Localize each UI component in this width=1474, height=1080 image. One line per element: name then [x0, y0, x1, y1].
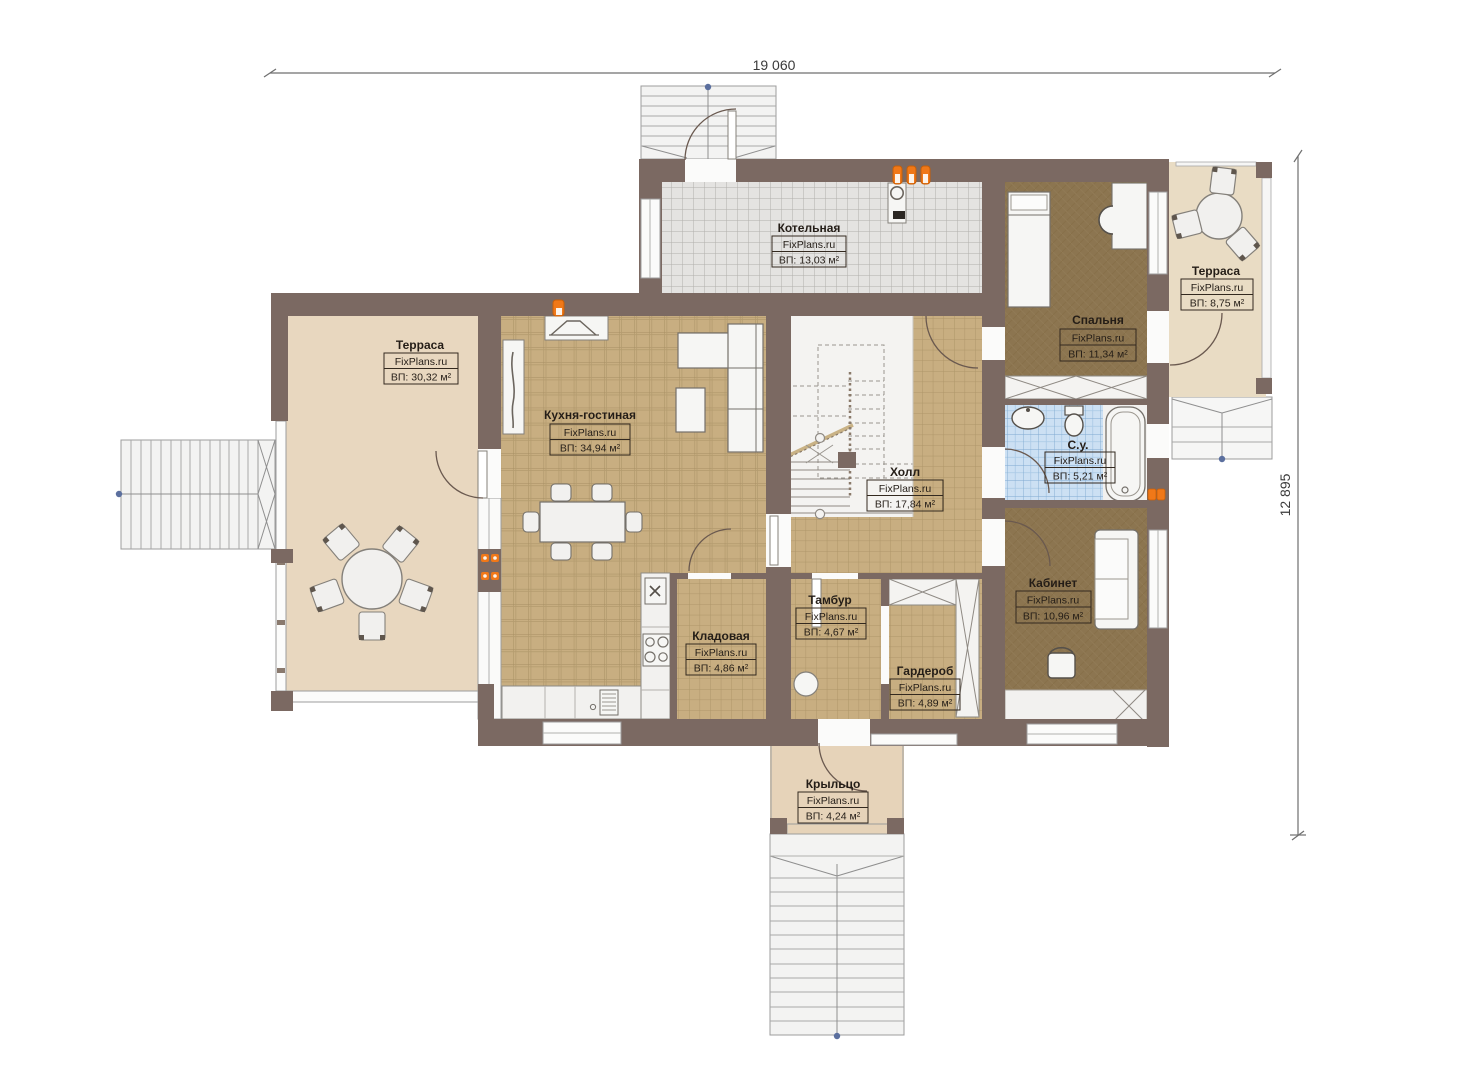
- svg-text:Тамбур: Тамбур: [808, 593, 852, 607]
- svg-text:Кухня-гостиная: Кухня-гостиная: [544, 408, 636, 422]
- svg-text:ВП: 30,32 м²: ВП: 30,32 м²: [391, 372, 452, 384]
- svg-text:FixPlans.ru: FixPlans.ru: [783, 239, 836, 251]
- svg-text:FixPlans.ru: FixPlans.ru: [1191, 282, 1244, 294]
- svg-text:FixPlans.ru: FixPlans.ru: [899, 682, 952, 694]
- svg-text:ВП: 10,96 м²: ВП: 10,96 м²: [1023, 611, 1084, 623]
- svg-text:Котельная: Котельная: [778, 221, 841, 235]
- svg-text:Кабинет: Кабинет: [1029, 576, 1078, 590]
- svg-text:ВП: 13,03 м²: ВП: 13,03 м²: [779, 255, 840, 267]
- svg-text:FixPlans.ru: FixPlans.ru: [805, 611, 858, 623]
- svg-text:Терраса: Терраса: [396, 338, 445, 352]
- svg-text:Кладовая: Кладовая: [692, 629, 749, 643]
- svg-text:Холл: Холл: [890, 465, 920, 479]
- svg-text:ВП: 34,94 м²: ВП: 34,94 м²: [560, 443, 621, 455]
- svg-text:ВП: 4,89 м²: ВП: 4,89 м²: [898, 698, 953, 710]
- svg-text:FixPlans.ru: FixPlans.ru: [1072, 333, 1125, 345]
- svg-text:FixPlans.ru: FixPlans.ru: [1027, 595, 1080, 607]
- svg-text:FixPlans.ru: FixPlans.ru: [1054, 455, 1107, 467]
- svg-text:ВП: 8,75 м²: ВП: 8,75 м²: [1190, 298, 1245, 310]
- svg-text:Спальня: Спальня: [1072, 313, 1124, 327]
- svg-text:С.у.: С.у.: [1068, 438, 1089, 452]
- svg-text:FixPlans.ru: FixPlans.ru: [879, 483, 932, 495]
- svg-text:ВП: 5,21 м²: ВП: 5,21 м²: [1053, 471, 1108, 483]
- svg-text:Гардероб: Гардероб: [897, 664, 954, 678]
- svg-text:19 060: 19 060: [753, 57, 796, 73]
- svg-text:ВП: 4,86 м²: ВП: 4,86 м²: [694, 663, 749, 675]
- svg-text:ВП: 11,34 м²: ВП: 11,34 м²: [1068, 349, 1128, 361]
- svg-text:FixPlans.ru: FixPlans.ru: [564, 427, 617, 439]
- svg-text:ВП: 17,84 м²: ВП: 17,84 м²: [875, 499, 936, 511]
- svg-text:FixPlans.ru: FixPlans.ru: [695, 647, 748, 659]
- svg-text:Терраса: Терраса: [1192, 264, 1241, 278]
- svg-text:FixPlans.ru: FixPlans.ru: [395, 356, 448, 368]
- svg-text:ВП: 4,67 м²: ВП: 4,67 м²: [804, 627, 859, 639]
- svg-text:12 895: 12 895: [1277, 473, 1293, 516]
- svg-text:Крыльцо: Крыльцо: [806, 777, 861, 791]
- svg-text:ВП: 4,24 м²: ВП: 4,24 м²: [806, 811, 861, 823]
- svg-text:FixPlans.ru: FixPlans.ru: [807, 795, 860, 807]
